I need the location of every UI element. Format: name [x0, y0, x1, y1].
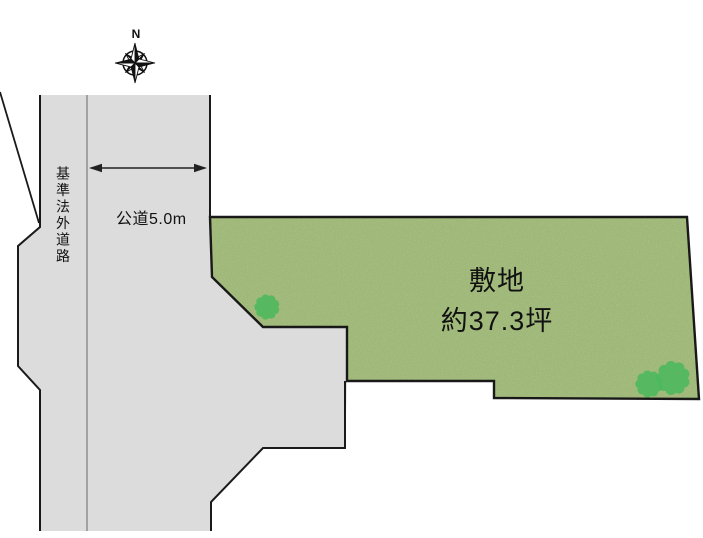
parcel-boundary-line — [0, 92, 39, 223]
public-road-width-label: 公道5.0m — [116, 205, 187, 229]
compass-rose-icon — [115, 43, 155, 83]
plot-label: 敷地 約37.3坪 — [397, 261, 597, 341]
compass-north-label: N — [128, 27, 144, 41]
site-plan-canvas: N 基準法外道路 公道5.0m 敷地 約37.3坪 — [0, 0, 703, 538]
plot-name-label: 敷地 — [397, 261, 597, 301]
site-plan-drawing — [0, 0, 703, 538]
plot-area-label: 約37.3坪 — [397, 301, 597, 341]
outside-standard-road-label: 基準法外道路 — [53, 166, 73, 265]
